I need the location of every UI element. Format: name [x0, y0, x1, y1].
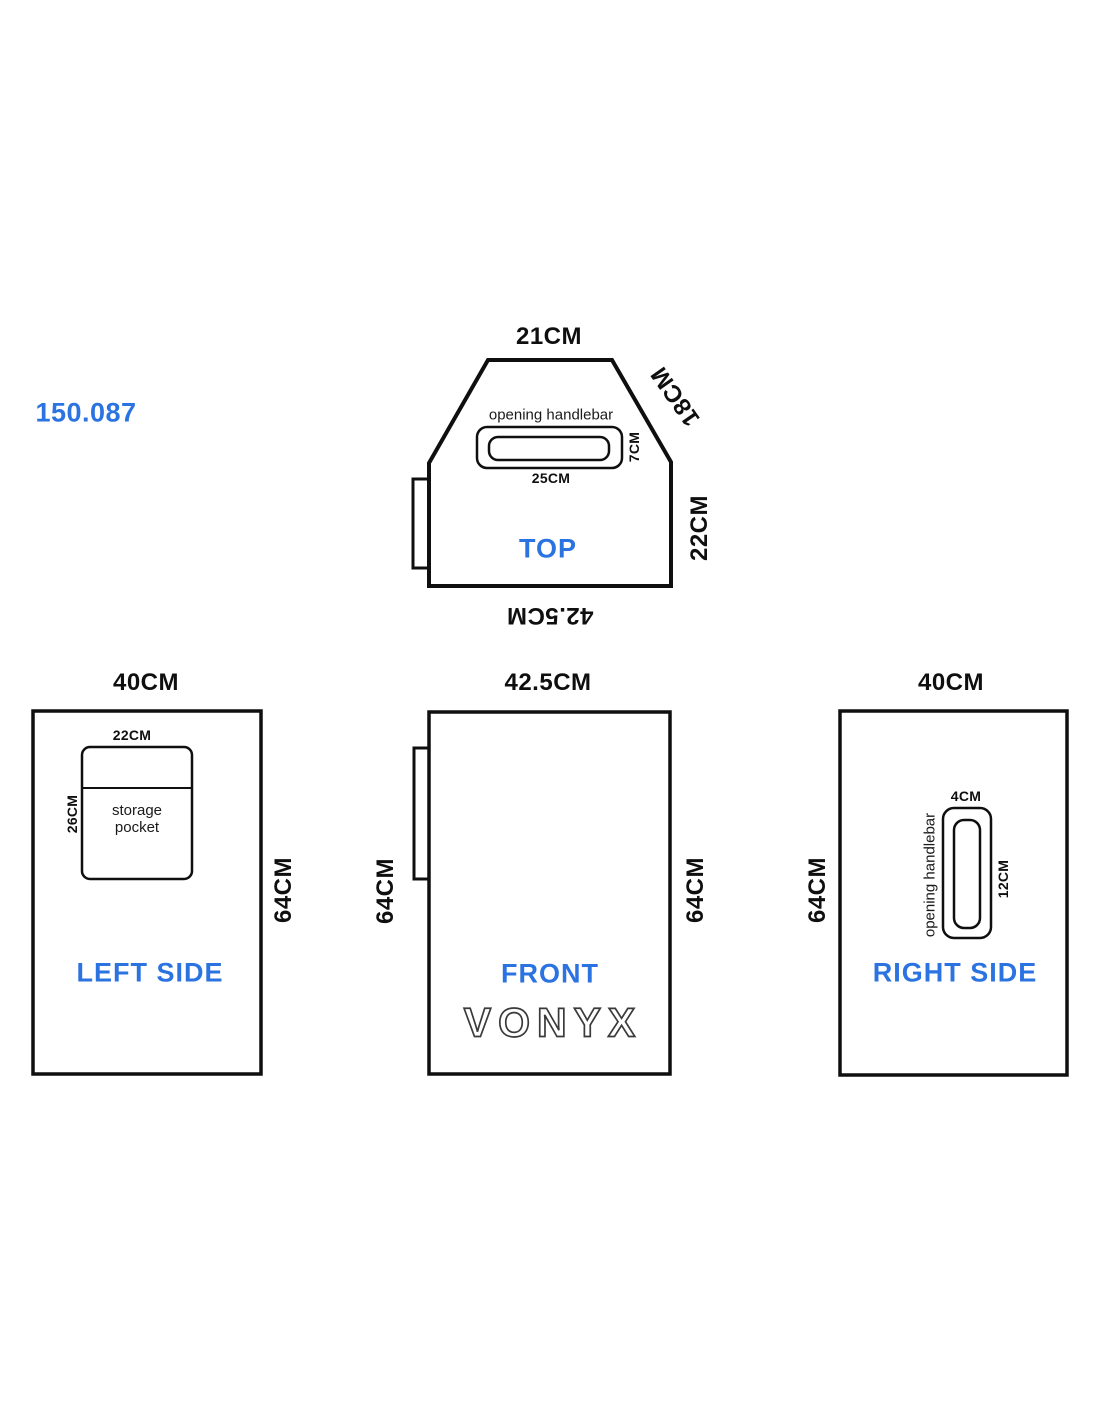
front-dim-left: 64CM	[372, 858, 400, 924]
front-dim-top: 42.5CM	[504, 669, 591, 697]
left-side-outline	[33, 711, 261, 1074]
brand-logo: VONYX	[464, 1000, 643, 1047]
left-side-dim-top: 40CM	[113, 669, 179, 697]
diagram-outlines	[0, 0, 1100, 1422]
top-handle-label: opening handlebar	[489, 407, 613, 424]
right-handle-label: opening handlebar	[922, 813, 939, 937]
right-side-view-label: RIGHT SIDE	[873, 958, 1038, 989]
pocket-width: 22CM	[113, 727, 152, 743]
right-side-dim-left: 64CM	[804, 857, 832, 923]
pocket-label: storage pocket	[96, 802, 178, 837]
left-side-view-label: LEFT SIDE	[76, 958, 223, 989]
top-dim-right: 22CM	[686, 495, 714, 561]
front-view-label: FRONT	[501, 959, 599, 990]
left-side-dim-right: 64CM	[270, 857, 298, 923]
top-dim-bottom: 42.5CM	[506, 601, 593, 629]
pocket-height: 26CM	[64, 795, 80, 834]
right-handle-inner	[954, 820, 980, 928]
top-view-label: TOP	[519, 534, 577, 565]
product-code: 150.087	[35, 398, 136, 429]
top-dim-top: 21CM	[516, 323, 582, 351]
right-handle-outer	[943, 808, 991, 938]
right-side-dim-top: 40CM	[918, 669, 984, 697]
front-dim-right: 64CM	[682, 857, 710, 923]
top-handle-height: 7CM	[626, 432, 642, 462]
right-handle-height: 12CM	[995, 860, 1011, 899]
top-view-tab	[413, 479, 429, 568]
front-tab	[414, 748, 429, 879]
right-handle-width: 4CM	[951, 788, 981, 804]
top-handle-width: 25CM	[532, 470, 571, 486]
